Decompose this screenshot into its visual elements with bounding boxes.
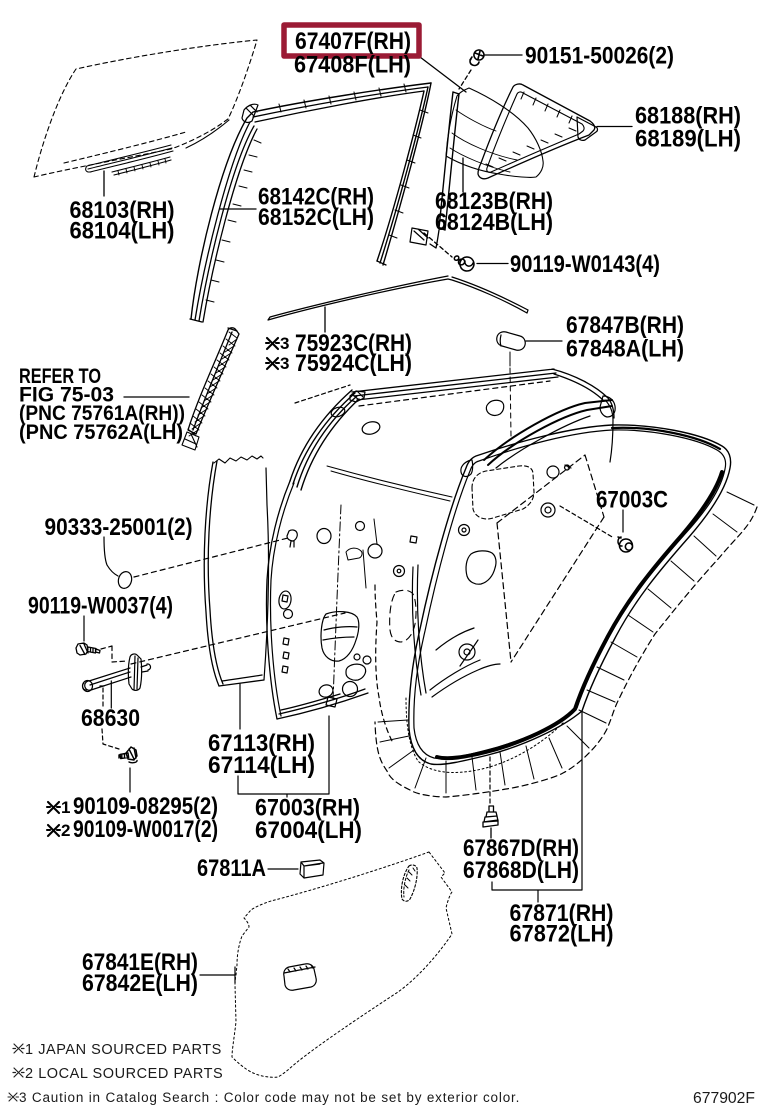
svg-text:1 JAPAN SOURCED PARTS: 1 JAPAN SOURCED PARTS bbox=[25, 1042, 222, 1058]
svg-text:68152C(LH): 68152C(LH) bbox=[258, 204, 374, 231]
svg-text:677902F: 677902F bbox=[693, 1090, 755, 1107]
svg-text:90333-25001(2): 90333-25001(2) bbox=[45, 514, 193, 541]
svg-text:67811A: 67811A bbox=[197, 855, 266, 882]
svg-text:67842E(LH): 67842E(LH) bbox=[82, 970, 198, 997]
svg-text:67003C: 67003C bbox=[596, 487, 668, 514]
svg-text:67872(LH): 67872(LH) bbox=[510, 921, 614, 948]
svg-text:(PNC 75762A(LH): (PNC 75762A(LH) bbox=[19, 421, 183, 444]
svg-text:68124B(LH): 68124B(LH) bbox=[435, 209, 553, 236]
svg-text:68630: 68630 bbox=[81, 705, 140, 732]
svg-text:90119-W0037(4): 90119-W0037(4) bbox=[28, 593, 173, 620]
svg-text:68189(LH): 68189(LH) bbox=[635, 126, 741, 153]
svg-text:3: 3 bbox=[280, 354, 289, 373]
svg-text:90109-W0017(2): 90109-W0017(2) bbox=[73, 816, 218, 843]
svg-text:3: 3 bbox=[280, 334, 289, 353]
svg-text:90151-50026(2): 90151-50026(2) bbox=[525, 43, 674, 70]
svg-text:67004(LH): 67004(LH) bbox=[255, 817, 362, 844]
svg-text:75924C(LH): 75924C(LH) bbox=[295, 350, 412, 377]
svg-text:68104(LH): 68104(LH) bbox=[70, 218, 175, 245]
svg-text:2 LOCAL SOURCED PARTS: 2 LOCAL SOURCED PARTS bbox=[25, 1066, 223, 1082]
svg-text:67868D(LH): 67868D(LH) bbox=[463, 857, 579, 884]
svg-text:67114(LH): 67114(LH) bbox=[208, 752, 315, 779]
svg-text:2: 2 bbox=[61, 821, 70, 840]
svg-text:67408F(LH): 67408F(LH) bbox=[294, 52, 411, 79]
svg-text:67848A(LH): 67848A(LH) bbox=[566, 336, 684, 363]
svg-text:3 Caution in Catalog Search :: 3 Caution in Catalog Search : Color code… bbox=[19, 1090, 520, 1105]
svg-text:90119-W0143(4): 90119-W0143(4) bbox=[510, 251, 660, 278]
svg-text:1: 1 bbox=[61, 798, 70, 817]
